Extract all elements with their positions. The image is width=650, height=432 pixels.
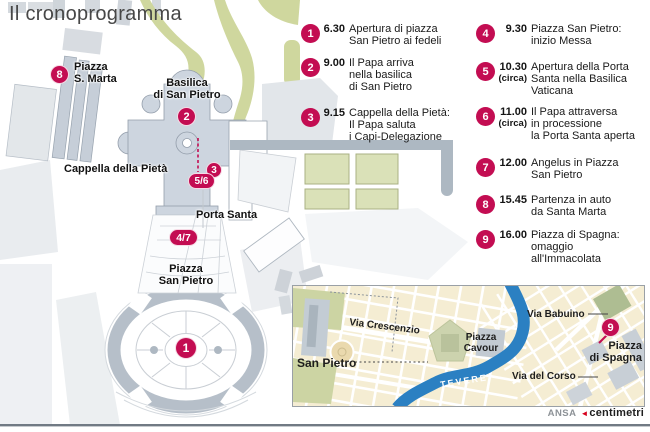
timeline-item-7: 7 12.00 Angelus in Piazza San Pietro — [476, 157, 650, 181]
map-marker-2-badge: 2 — [177, 107, 196, 126]
timeline-marker-4: 4 — [476, 24, 495, 43]
timeline-item-3: 3 9.15 Cappella della Pietà: Il Papa sal… — [301, 107, 481, 143]
timeline-desc-1: Apertura di piazza San Pietro ai fedeli — [349, 23, 481, 47]
timeline-marker-9: 9 — [476, 230, 495, 249]
inset-marker-9-badge: 9 — [601, 318, 620, 337]
inset-label-via-del-corso: Via del Corso — [512, 371, 576, 382]
timeline-time-1: 6.30 — [322, 23, 345, 35]
label-piazza-san-pietro: Piazza San Pietro — [146, 263, 226, 287]
timeline-desc-2: Il Papa arriva nella basilica di San Pie… — [349, 57, 481, 93]
credit-brand: centimetri — [589, 407, 644, 419]
bottom-rule — [0, 424, 650, 426]
timeline-time-6: 11.00(circa) — [497, 106, 527, 129]
map-marker-4-7-badge: 4/7 — [169, 229, 198, 246]
inset-label-via-babuino: Via Babuino — [527, 309, 585, 320]
map-marker-5-6-badge: 5/6 — [188, 173, 215, 189]
timeline-marker-5: 5 — [476, 62, 495, 81]
timeline-desc-8: Partenza in auto da Santa Marta — [531, 194, 650, 218]
page-title: Il cronoprogramma — [9, 3, 182, 26]
timeline-desc-7: Angelus in Piazza San Pietro — [531, 157, 650, 181]
timeline-item-2: 2 9.00 Il Papa arriva nella basilica di … — [301, 57, 481, 93]
timeline-desc-4: Piazza San Pietro: inizio Messa — [531, 23, 650, 47]
timeline-item-9: 9 16.00 Piazza di Spagna: omaggio all'Im… — [476, 229, 650, 265]
timeline-item-4: 4 9.30 Piazza San Pietro: inizio Messa — [476, 23, 650, 47]
santa-marta-buildings — [6, 23, 107, 166]
timeline-time-9: 16.00 — [497, 229, 527, 241]
centimetri-arrow-icon: ◄ — [581, 409, 589, 418]
timeline-desc-3: Cappella della Pietà: Il Papa saluta i C… — [349, 107, 481, 143]
timeline-marker-3: 3 — [301, 108, 320, 127]
credit-agency: ANSA — [548, 408, 577, 419]
timeline-time-8: 15.45 — [497, 194, 527, 206]
timeline-item-6: 6 11.00(circa) Il Papa attraversa in pro… — [476, 106, 650, 142]
inset-label-san-pietro: San Pietro — [297, 357, 356, 370]
garden-lawns — [305, 154, 398, 209]
timeline-time-4: 9.30 — [497, 23, 527, 35]
timeline-marker-1: 1 — [301, 24, 320, 43]
timeline-desc-5: Apertura della Porta Santa nella Basilic… — [531, 61, 650, 97]
timeline-time-3: 9.15 — [322, 107, 345, 119]
timeline-marker-6: 6 — [476, 107, 495, 126]
timeline-time-5: 10.30(circa) — [497, 61, 527, 84]
timeline-item-8: 8 15.45 Partenza in auto da Santa Marta — [476, 194, 650, 218]
infographic: Il cronoprogramma Piazza S. Marta Basili… — [0, 0, 650, 432]
timeline-item-1: 1 6.30 Apertura di piazza San Pietro ai … — [301, 23, 481, 47]
timeline-time-2: 9.00 — [322, 57, 345, 69]
credits: ANSA ◄ centimetri — [548, 407, 644, 419]
label-piazza-s-marta: Piazza S. Marta — [74, 61, 117, 85]
label-cappella-della-pieta: Cappella della Pietà — [64, 163, 167, 175]
inset-label-piazza-cavour: Piazza Cavour — [452, 332, 510, 354]
timeline-marker-7: 7 — [476, 158, 495, 177]
timeline-item-5: 5 10.30(circa) Apertura della Porta Sant… — [476, 61, 650, 97]
inset-label-piazza-di-spagna: Piazza di Spagna — [584, 340, 642, 364]
timeline-desc-6: Il Papa attraversa in processione la Por… — [531, 106, 650, 142]
map-marker-1-badge: 1 — [175, 337, 197, 359]
map-marker-8-badge: 8 — [50, 65, 69, 84]
label-porta-santa: Porta Santa — [196, 209, 257, 221]
timeline-marker-2: 2 — [301, 58, 320, 77]
timeline-marker-8: 8 — [476, 195, 495, 214]
label-basilica: Basilica di San Pietro — [140, 77, 234, 101]
timeline-time-7: 12.00 — [497, 157, 527, 169]
timeline-desc-9: Piazza di Spagna: omaggio all'Immacolata — [531, 229, 650, 265]
